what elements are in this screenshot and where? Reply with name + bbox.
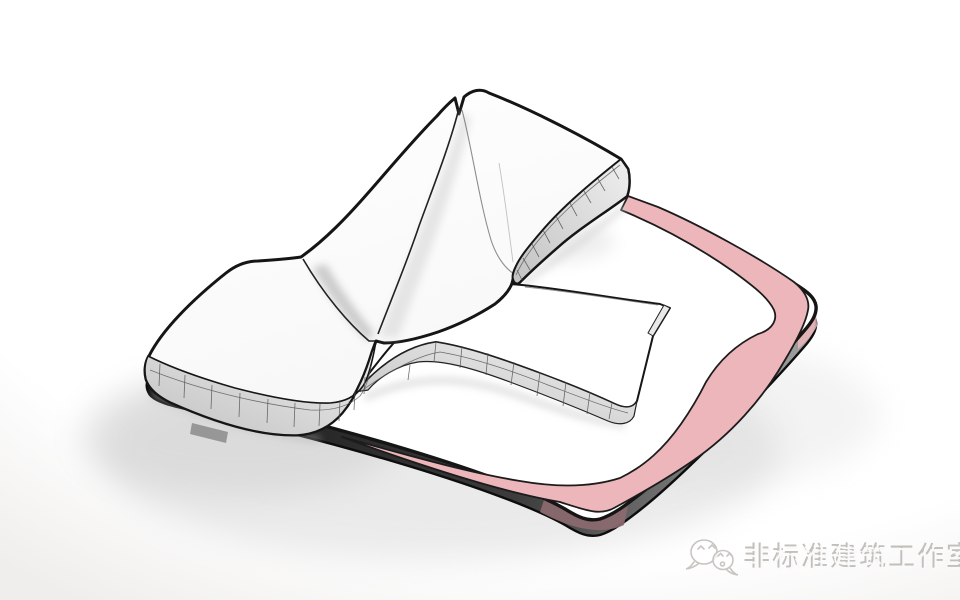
watermark-text: 非标准建筑工作室 <box>745 544 960 574</box>
model-viewport: 非标准建筑工作室 非标准建筑工作室 <box>0 0 960 600</box>
render-stage: 非标准建筑工作室 非标准建筑工作室 <box>0 0 960 600</box>
